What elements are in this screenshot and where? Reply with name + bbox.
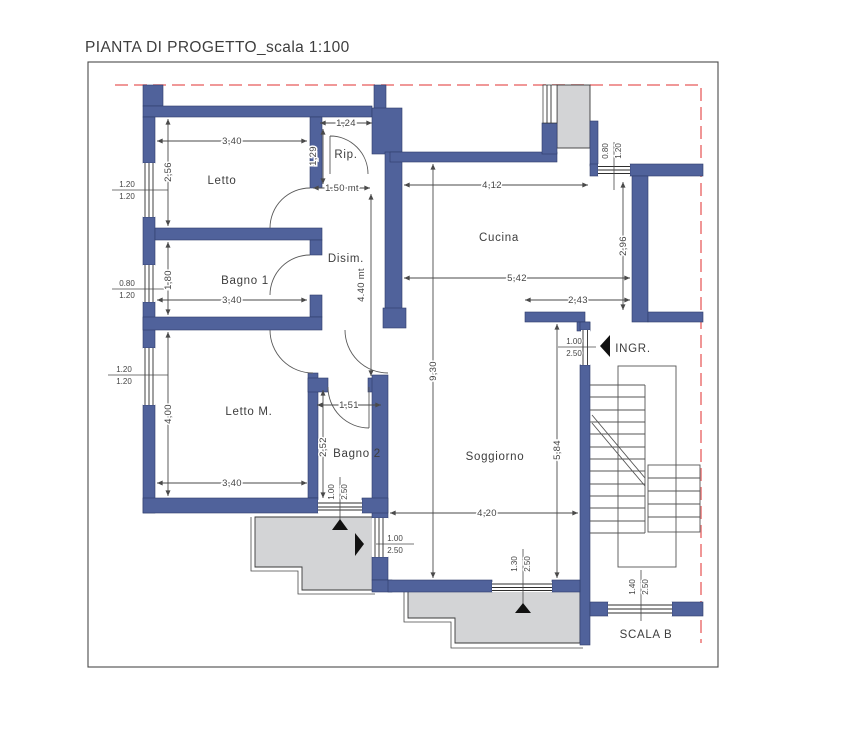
dim-bagno2-height: 2,52 [318, 437, 329, 457]
win-bagno1-w: 0.80 [119, 279, 135, 288]
win-scala-w: 1.40 [628, 579, 637, 595]
room-label-cucina: Cucina [479, 232, 519, 244]
door-sogg-west-w: 1.00 [387, 534, 403, 543]
dim-rip-width: 1,24 [336, 118, 356, 129]
room-label-bagno1: Bagno 1 [221, 275, 269, 287]
dim-disim-height: 4.40 mt [356, 268, 367, 302]
dim-cucina-lower: 2,43 [568, 295, 588, 306]
room-label-letto: Letto [207, 175, 236, 187]
french-door-soggiorno-west [372, 518, 388, 557]
door-lettom [270, 330, 313, 373]
dim-soggiorno-height: 5,84 [552, 440, 563, 460]
room-label-lettom: Letto M. [225, 406, 272, 418]
door-sogg-west-h: 2.50 [387, 546, 403, 555]
floor-plan-page: PIANTA DI PROGETTO_scala 1:100 [0, 0, 842, 738]
win-cucina-w: 0.80 [601, 143, 610, 159]
dim-bagno1-width: 3,40 [222, 295, 242, 306]
room-label-ingresso: INGR. [615, 343, 650, 355]
dim-cucina-right: 2,96 [618, 236, 629, 256]
dim-rip-passage: 1.50 mt [325, 183, 359, 194]
french-door-soggiorno-south [492, 582, 552, 592]
win-letto-w: 1.20 [119, 180, 135, 189]
win-bagno2-h: 2.50 [340, 484, 349, 500]
dim-letto-width: 3,40 [222, 136, 242, 147]
window-shaft [543, 85, 557, 123]
win-lettom-h: 1.20 [116, 377, 132, 386]
page-title: PIANTA DI PROGETTO_scala 1:100 [85, 39, 350, 56]
dim-cucina-top: 4,12 [482, 180, 502, 191]
door-sogg-south-w: 1.30 [510, 556, 519, 572]
win-bagno2-w: 1.00 [327, 484, 336, 500]
room-label-bagno2: Bagno 2 [333, 448, 381, 460]
shaft [557, 85, 590, 148]
room-label-disim: Disim. [328, 253, 364, 265]
balconies [255, 85, 590, 643]
door-letto [270, 188, 310, 228]
dim-bagno2-width: 1,51 [339, 400, 359, 411]
room-label-scala: SCALA B [620, 629, 673, 641]
win-lettom-w: 1.20 [116, 365, 132, 374]
room-label-soggiorno: Soggiorno [466, 451, 525, 463]
win-letto-h: 1.20 [119, 192, 135, 201]
balcony-south [408, 590, 580, 643]
window-lettom [143, 348, 155, 405]
window-scala [608, 602, 672, 616]
dim-rip-height: 1,29 [308, 146, 319, 166]
stair-direction-line [592, 415, 645, 486]
door-ingresso-w: 1.00 [566, 337, 582, 346]
dim-cucina-width: 5,42 [507, 273, 527, 284]
marker-entrance-icon [600, 335, 610, 357]
dim-letto-height: 2,56 [163, 162, 174, 182]
dim-plan-height: 9,30 [428, 361, 439, 381]
door-sogg-south-h: 2.50 [523, 556, 532, 572]
entrance-door [581, 330, 590, 365]
dim-bagno1-height: 1,80 [163, 270, 174, 290]
door-soggiorno [345, 330, 388, 373]
balcony-west [255, 517, 375, 590]
dim-lettom-width: 3,40 [222, 478, 242, 489]
dim-soggiorno-width: 4,20 [477, 508, 497, 519]
dim-lettom-height: 4,00 [163, 404, 174, 424]
win-cucina-h: 1.20 [614, 143, 623, 159]
room-label-rip: Rip. [334, 149, 357, 161]
window-bagno1 [143, 265, 155, 302]
staircase [590, 366, 700, 567]
door-bagno1 [270, 255, 310, 295]
win-bagno1-h: 1.20 [119, 291, 135, 300]
floor-plan-drawing: PIANTA DI PROGETTO_scala 1:100 [0, 0, 842, 738]
door-ingresso-h: 2.50 [566, 349, 582, 358]
win-scala-h: 2.50 [641, 579, 650, 595]
